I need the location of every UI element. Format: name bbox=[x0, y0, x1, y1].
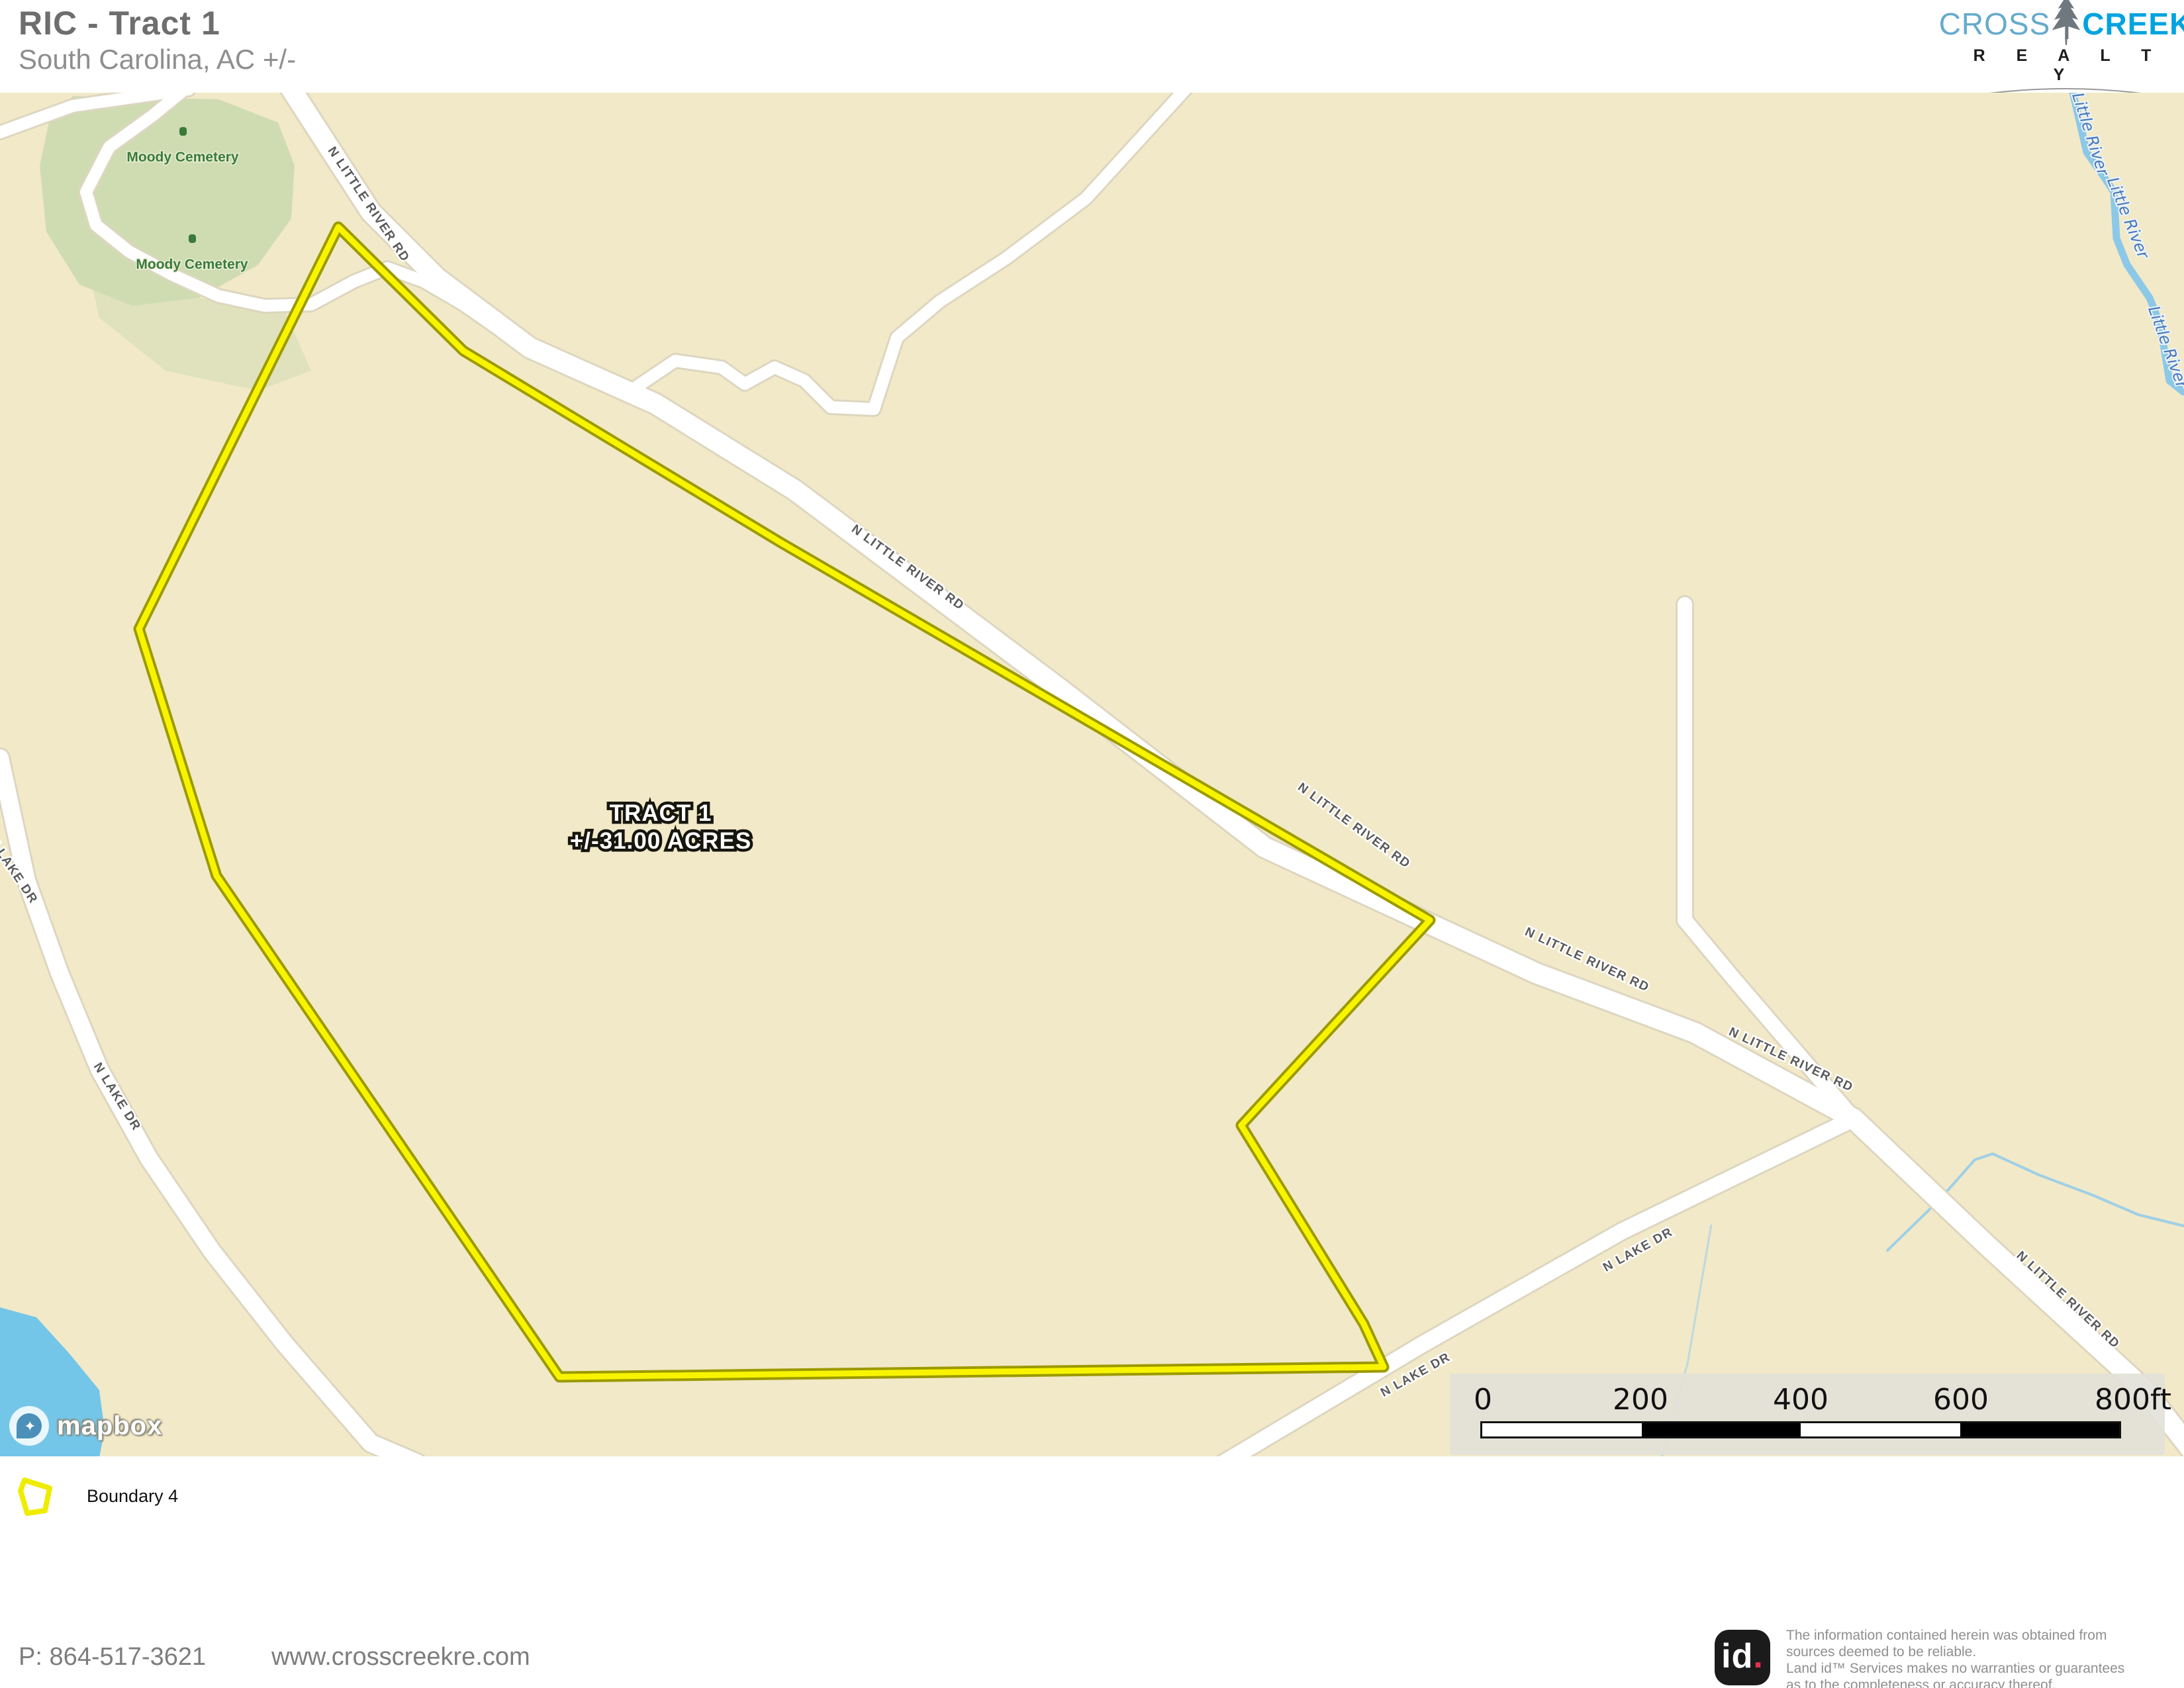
scale-tick-400: 400 bbox=[1773, 1383, 1828, 1417]
website-url: www.crosscreekre.com bbox=[271, 1643, 530, 1671]
mapbox-wordmark: mapbox bbox=[57, 1411, 162, 1441]
river-label-1: Little River bbox=[2068, 93, 2113, 179]
river-label-2: Little River bbox=[2103, 174, 2153, 262]
tract-name: TRACT 1 bbox=[610, 800, 712, 826]
scale-tick-600: 600 bbox=[1933, 1383, 1989, 1417]
road-label-little-river-rd-2: N LITTLE RIVER RD bbox=[849, 522, 967, 613]
road-labels: N LITTLE RIVER RD N LITTLE RIVER RD N LI… bbox=[0, 144, 2122, 1400]
legend-item-label: Boundary 4 bbox=[87, 1486, 178, 1507]
page-title: RIC - Tract 1 bbox=[19, 4, 220, 42]
map-features: Moody Cemetery Moody Cemetery N LITTLE R… bbox=[0, 93, 2184, 1456]
cross-creek-logo: CROSS CREEK R E A L T Y L L C bbox=[1956, 3, 2175, 105]
logo-creek-text: CREEK bbox=[2082, 6, 2184, 42]
road-n-little-river-rd bbox=[289, 93, 2184, 1450]
scale-tick-800: 800ft bbox=[2095, 1383, 2171, 1417]
disclaimer-text: The information contained herein was obt… bbox=[1786, 1627, 2124, 1688]
tract-boundary bbox=[139, 227, 1430, 1377]
disclaimer-line: The information contained herein was obt… bbox=[1786, 1627, 2124, 1644]
tract-acreage: +/-31.00 ACRES bbox=[570, 828, 751, 854]
land-id-text: id bbox=[1721, 1637, 1753, 1675]
scale-bar: 0 200 400 600 800ft bbox=[1450, 1374, 2165, 1455]
logo-wordmark: CROSS CREEK bbox=[1956, 3, 2175, 45]
disclaimer-line: sources deemed to be reliable. bbox=[1786, 1644, 2124, 1660]
land-id-dot: . bbox=[1753, 1637, 1763, 1675]
disclaimer-line: as to the completeness or accuracy there… bbox=[1786, 1677, 2124, 1688]
mapbox-icon: ✦ bbox=[9, 1406, 49, 1446]
roads bbox=[0, 93, 2184, 1456]
scale-tick-200: 200 bbox=[1613, 1383, 1668, 1417]
boundary-swatch-icon bbox=[17, 1475, 55, 1517]
tract-label: TRACT 1 +/-31.00 ACRES bbox=[570, 800, 751, 854]
scale-tick-0: 0 bbox=[1474, 1383, 1492, 1417]
page-subtitle: South Carolina, AC +/- bbox=[19, 44, 296, 75]
mapbox-logo[interactable]: ✦ mapbox bbox=[9, 1406, 162, 1446]
scale-bar-segments bbox=[1480, 1421, 2121, 1438]
map-canvas[interactable]: Moody Cemetery Moody Cemetery N LITTLE R… bbox=[0, 93, 2184, 1456]
logo-cross-text: CROSS bbox=[1939, 6, 2051, 42]
phone-number: P: 864-517-3621 bbox=[19, 1643, 206, 1671]
legend-row: Boundary 4 bbox=[17, 1475, 178, 1517]
river-label-3: Little River bbox=[2144, 303, 2184, 392]
page: RIC - Tract 1 South Carolina, AC +/- CRO… bbox=[0, 0, 2184, 1688]
road-label-little-river-rd-1: N LITTLE RIVER RD bbox=[325, 144, 412, 265]
pine-tree-icon bbox=[2048, 0, 2085, 46]
cemetery-label-2: Moody Cemetery bbox=[136, 257, 248, 272]
disclaimer-line: Land id™ Services makes no warranties or… bbox=[1786, 1660, 2124, 1677]
river-labels: Little River Little River Little River bbox=[2068, 93, 2184, 392]
road-north-branch bbox=[629, 93, 1188, 409]
logo-realty-text: R E A L T Y bbox=[1956, 46, 2175, 85]
land-id-logo: id. bbox=[1715, 1630, 1770, 1685]
cemetery-label-1: Moody Cemetery bbox=[126, 150, 239, 165]
